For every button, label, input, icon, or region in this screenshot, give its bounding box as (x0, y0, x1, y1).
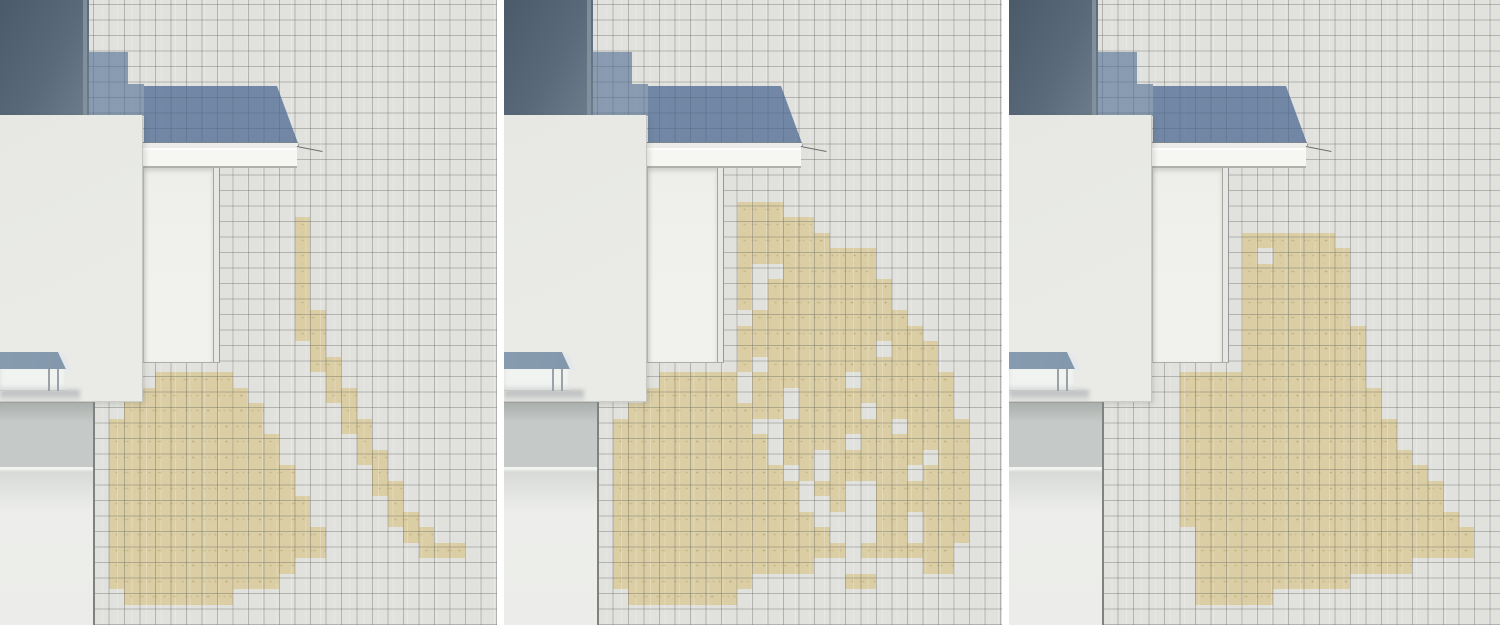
render-panel-left (0, 0, 497, 625)
render-panel-middle (504, 0, 1002, 625)
chimney-edge-highlight (83, 0, 87, 116)
door-panel (1152, 168, 1222, 363)
chimney-edge-highlight (587, 0, 591, 116)
base-wall-shaded-band (504, 402, 598, 467)
awning-post (561, 369, 563, 391)
door-jamb (1222, 168, 1229, 363)
chimney-shadow-step (632, 84, 648, 116)
render-panel-right (1009, 0, 1500, 625)
base-wall-shaded-band (0, 402, 94, 467)
chimney-block (504, 0, 593, 116)
door-panel (647, 168, 717, 363)
awning-post (57, 369, 59, 391)
chimney-shadow-step (1137, 84, 1153, 116)
door-panel (143, 168, 213, 363)
base-wall (504, 467, 598, 625)
fascia-board (644, 148, 801, 168)
wall-corner-line (597, 402, 599, 625)
door-jamb (213, 168, 220, 363)
triptych-stage (0, 0, 1500, 625)
chimney-block (1009, 0, 1098, 116)
base-wall (0, 467, 94, 625)
chimney-edge-highlight (1092, 0, 1096, 116)
chimney-shadow-step (592, 52, 632, 116)
chimney-block (0, 0, 89, 116)
base-wall (1009, 467, 1103, 625)
base-wall-shaded-band (1009, 402, 1103, 467)
fascia-board (1149, 148, 1306, 168)
awning-post (48, 369, 50, 391)
chimney-shadow-step (128, 84, 144, 116)
fascia-board (140, 148, 297, 168)
awning-post (1057, 369, 1059, 391)
awning-post (552, 369, 554, 391)
wall-corner-line (93, 402, 95, 625)
door-jamb (717, 168, 724, 363)
wall-corner-line (1102, 402, 1104, 625)
chimney-shadow-step (1097, 52, 1137, 116)
awning-post (1066, 369, 1068, 391)
chimney-shadow-step (88, 52, 128, 116)
